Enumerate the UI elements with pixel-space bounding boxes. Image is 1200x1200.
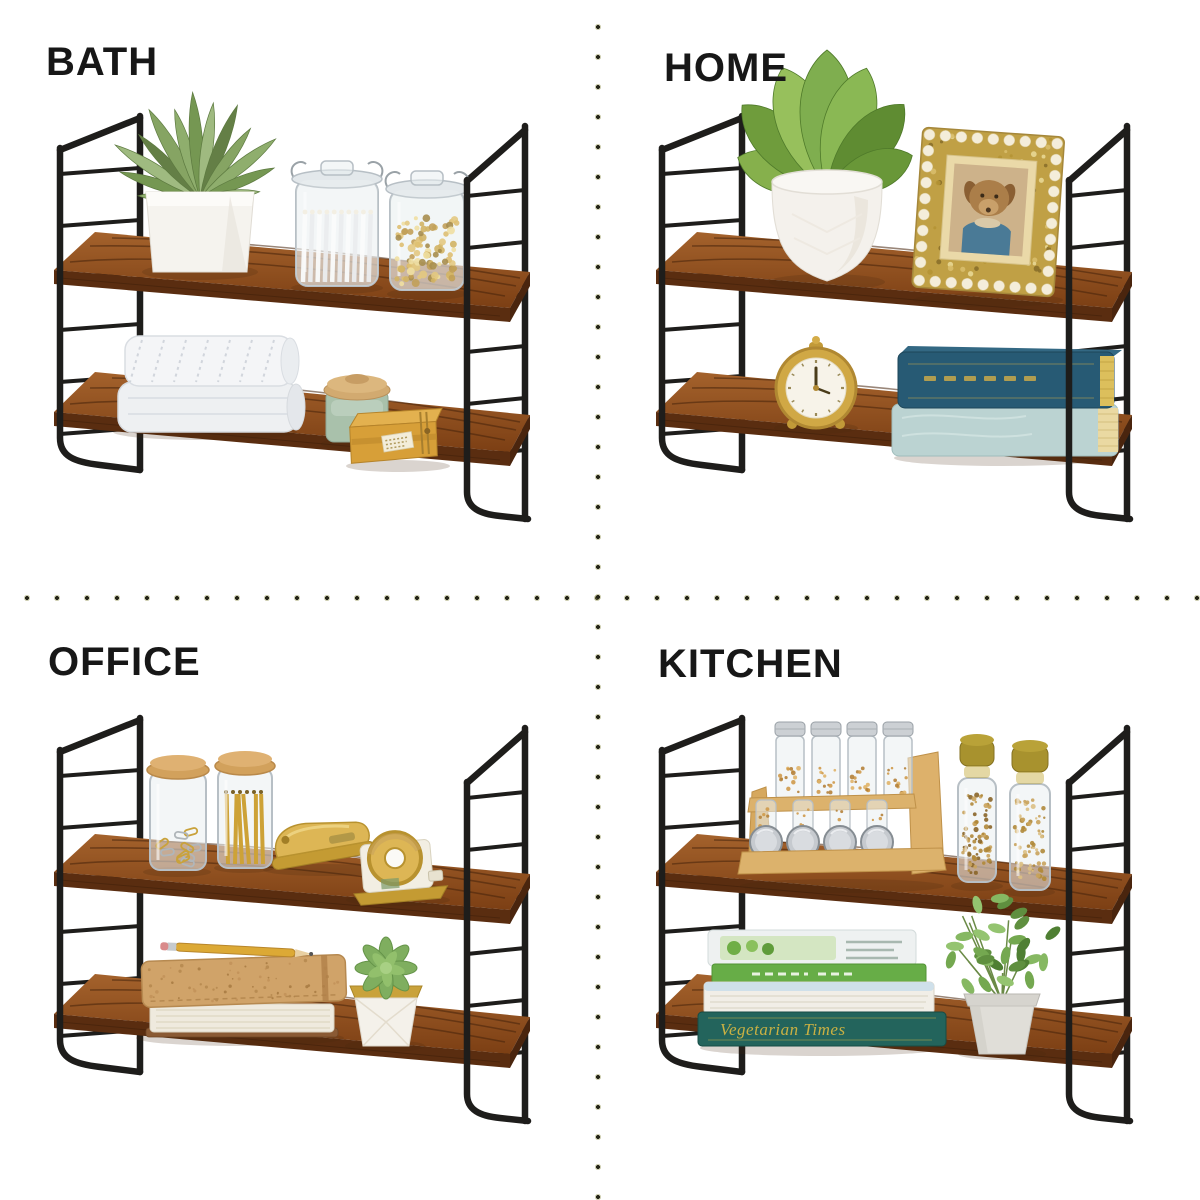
section-bath: BATH [0, 0, 598, 598]
section-label-office: OFFICE [48, 642, 201, 682]
paperclip-jar [143, 755, 211, 877]
section-office: OFFICE [0, 602, 598, 1200]
stacked-books [892, 346, 1122, 466]
white-cube-planter [146, 192, 254, 272]
bamboo-spice-rack [738, 722, 946, 893]
dotted-divider-vertical [594, 0, 602, 1200]
notebook-stack [136, 942, 347, 1046]
section-label-kitchen: KITCHEN [658, 644, 843, 684]
book-spine-text: Vegetarian Times [720, 1020, 846, 1039]
cookbook-stack: Vegetarian Times [698, 930, 946, 1056]
shelf-photo-kitchen: Vegetarian Times [602, 602, 1200, 1200]
section-kitchen: KITCHEN Vegetarian Times [602, 602, 1200, 1200]
section-home: HOME [602, 0, 1200, 598]
product-collage: BATH HOME OFFICE KITCHEN Vegetarian Time… [0, 0, 1200, 1200]
section-label-home: HOME [664, 48, 788, 88]
gold-bead-jar [386, 171, 469, 300]
shelf-photo-office [0, 602, 598, 1200]
pencil [160, 942, 313, 958]
frame-body [912, 127, 1065, 297]
pencil-jar [214, 751, 275, 873]
cotton-swab-jar [291, 161, 383, 294]
folded-towels [113, 336, 305, 440]
ornate-picture-frame [912, 127, 1065, 307]
section-label-bath: BATH [46, 42, 158, 82]
shelf-photo-bath [0, 0, 598, 598]
shelf-frame-front [60, 750, 528, 1121]
